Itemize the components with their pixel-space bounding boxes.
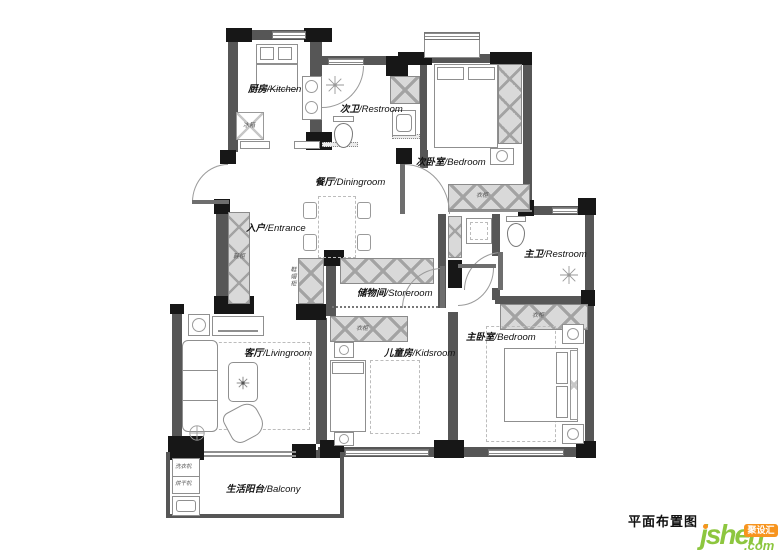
toilet-tank bbox=[333, 116, 354, 122]
wall-column bbox=[434, 440, 464, 458]
window bbox=[272, 31, 306, 39]
wardrobe-baseline bbox=[448, 210, 532, 212]
sink-bowl bbox=[260, 47, 274, 60]
tv-cabinet bbox=[212, 316, 264, 336]
toilet-tank bbox=[506, 216, 526, 222]
wall-segment bbox=[420, 58, 427, 150]
wall-segment bbox=[216, 205, 228, 309]
nightstand-lamp bbox=[339, 434, 349, 444]
bathroom-cabinet bbox=[448, 216, 462, 258]
nightstand-lamp bbox=[567, 328, 579, 340]
pillow bbox=[437, 67, 464, 80]
dining-chair bbox=[303, 202, 317, 219]
logo-tld: .com bbox=[744, 538, 774, 553]
dining-chair bbox=[357, 202, 371, 219]
kitchen-cabinet bbox=[294, 141, 320, 149]
floor-plan: 冰箱 洗衣机 bbox=[0, 0, 780, 557]
dining-chair bbox=[303, 234, 317, 251]
wardrobe-cabinet bbox=[498, 64, 522, 144]
tv-screen bbox=[218, 330, 258, 332]
door-swing-arc bbox=[192, 164, 228, 202]
shoe-cabinet-label: 鞋柜 bbox=[233, 254, 245, 261]
dining-table bbox=[318, 196, 356, 258]
room-label-balcony: 生活阳台/Balcony bbox=[226, 484, 300, 495]
wall-column bbox=[578, 198, 596, 215]
wall-column bbox=[304, 28, 332, 42]
pillow bbox=[332, 362, 364, 374]
rug bbox=[370, 360, 420, 434]
dryer-label: 烘干机 bbox=[175, 481, 192, 488]
wall-column bbox=[170, 304, 184, 314]
room-label-kids: 儿童房/Kidsroom bbox=[384, 348, 455, 359]
room-label-bath2: 次卫/Restroom bbox=[340, 104, 403, 115]
wardrobe-cabinet bbox=[330, 316, 408, 342]
room-label-dining: 餐厅/Diningroom bbox=[315, 177, 385, 188]
shower-head-icon bbox=[560, 266, 578, 284]
door-leaf bbox=[400, 164, 405, 214]
wall-segment bbox=[495, 296, 593, 304]
shower-head-icon bbox=[326, 76, 344, 94]
nightstand-lamp bbox=[339, 345, 349, 355]
door-swing-arc bbox=[405, 164, 450, 214]
watermark-title: 平面布置图 bbox=[628, 511, 698, 530]
stove-burner bbox=[305, 80, 318, 93]
vanity-mirror bbox=[470, 222, 488, 240]
wash-basin-bowl bbox=[396, 114, 412, 132]
pillow bbox=[556, 386, 568, 418]
sofa-cushion-line bbox=[182, 400, 218, 401]
washer-label: 洗衣机 bbox=[175, 464, 192, 471]
door-swing-arc bbox=[458, 268, 494, 306]
window bbox=[424, 32, 480, 40]
pillow bbox=[468, 67, 495, 80]
hallway-cabinet bbox=[298, 258, 324, 304]
balcony-wall bbox=[166, 452, 170, 516]
room-label-bath1: 主卫/Restroom bbox=[524, 249, 587, 260]
duct-shaft bbox=[390, 76, 420, 104]
toilet-bowl bbox=[507, 223, 525, 247]
window bbox=[488, 449, 564, 456]
wall-column bbox=[226, 28, 252, 42]
wall-segment bbox=[316, 318, 327, 444]
door-leaf bbox=[498, 252, 503, 290]
fridge-label: 冰箱 bbox=[243, 123, 255, 130]
wall-segment bbox=[492, 214, 500, 256]
window bbox=[345, 449, 429, 456]
room-label-bedroom1: 主卧室/Bedroom bbox=[466, 332, 536, 343]
hall-cabinet-label: 鞋帽柜 bbox=[288, 266, 295, 287]
floor-lamp-icon bbox=[188, 424, 206, 442]
wall-segment bbox=[172, 311, 182, 439]
room-label-storeroom: 储物间/Storeroom bbox=[357, 288, 433, 299]
window bbox=[552, 207, 578, 214]
wardrobe-cabinet bbox=[448, 184, 530, 210]
logo-j-dot bbox=[703, 524, 708, 529]
sliding-door bbox=[204, 455, 296, 457]
wall-segment bbox=[448, 312, 458, 442]
room-label-bedroom2: 次卧室/Bedroom bbox=[416, 157, 486, 168]
pillow bbox=[556, 352, 568, 384]
dining-chair bbox=[357, 234, 371, 251]
stool-seat bbox=[496, 150, 508, 162]
room-label-kitchen: 厨房/Kitchen bbox=[248, 84, 301, 95]
wall-column bbox=[296, 304, 326, 320]
door-leaf bbox=[192, 200, 229, 204]
sofa-cushion-line bbox=[182, 370, 218, 371]
logo-badge: 聚设汇 bbox=[744, 524, 778, 537]
wall-column bbox=[220, 150, 236, 164]
wardrobe-label: 衣柜 bbox=[356, 326, 368, 333]
headboard bbox=[570, 350, 578, 420]
door-leaf bbox=[440, 266, 445, 308]
plant-icon bbox=[236, 376, 250, 390]
sink-bowl bbox=[278, 47, 292, 60]
balcony-basin-bowl bbox=[176, 500, 196, 512]
stove-burner bbox=[305, 101, 318, 114]
room-label-entrance: 入户/Entrance bbox=[246, 223, 306, 234]
window bbox=[328, 58, 364, 65]
sliding-door bbox=[204, 451, 296, 453]
balcony-wall bbox=[340, 452, 344, 514]
speaker-cone bbox=[192, 318, 206, 332]
kitchen-cabinet bbox=[240, 141, 270, 149]
room-label-living: 客厅/Livingroom bbox=[244, 348, 312, 359]
sofa bbox=[182, 340, 218, 432]
wardrobe-label: 衣柜 bbox=[532, 313, 544, 320]
wardrobe-label: 衣柜 bbox=[476, 193, 488, 200]
wall-column bbox=[396, 148, 412, 164]
door-leaf bbox=[458, 264, 496, 268]
cabinet-divider bbox=[172, 476, 200, 477]
nightstand-lamp bbox=[567, 428, 579, 440]
